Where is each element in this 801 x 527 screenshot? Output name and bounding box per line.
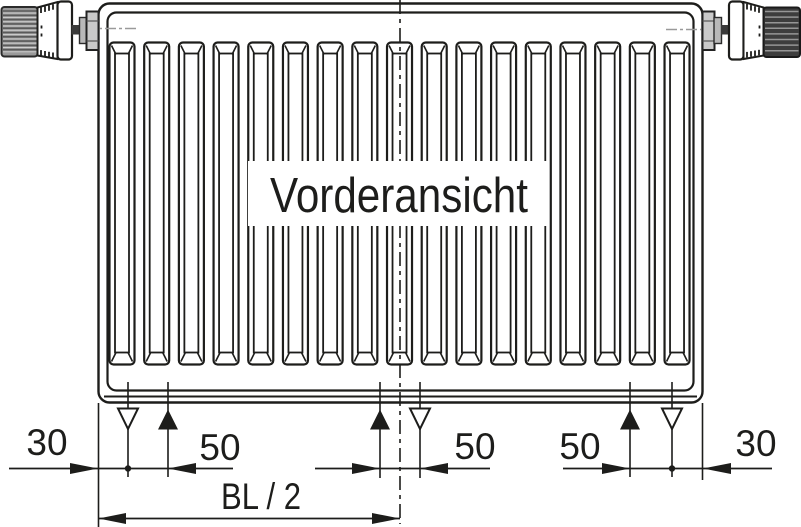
arrowhead-right-icon: [352, 463, 380, 474]
filled-triangle-up-icon: [158, 410, 178, 430]
dim-label-right-margin: 30: [735, 423, 776, 464]
arrowhead-left-icon: [420, 463, 448, 474]
lockshield-cap-right: [764, 8, 801, 58]
hollow-triangle-down-icon: [662, 409, 682, 430]
valve-cone-right: [744, 2, 764, 59]
dimension-point-dot: [669, 465, 675, 471]
union-nut-right: [703, 12, 715, 51]
arrowhead-left-icon: [99, 513, 127, 524]
dimension-point-dot: [125, 465, 131, 471]
rib-inner-face: [184, 54, 198, 353]
rib-inner-face: [219, 54, 233, 353]
radiator-front-view-drawing: Vorderansicht: [0, 0, 801, 527]
dim-label-left-spacing: 50: [199, 427, 240, 468]
front-view-title: Vorderansicht: [270, 169, 528, 223]
arrowhead-right-icon: [602, 463, 630, 474]
radiator-rib: [630, 43, 655, 365]
filled-triangle-up-icon: [370, 410, 390, 430]
rib-inner-face: [670, 54, 684, 353]
arrowhead-left-icon: [703, 463, 731, 474]
dimension-lines: [9, 469, 772, 519]
rib-inner-face: [115, 54, 129, 353]
rib-inner-face: [601, 54, 615, 353]
rib-inner-face: [635, 54, 649, 353]
front-view-label-box: Vorderansicht: [248, 161, 547, 226]
rib-inner-face: [150, 54, 164, 353]
radiator-rib: [214, 43, 239, 365]
dim-label-half-build-length: BL / 2: [221, 476, 301, 517]
valve-stem-left: [72, 25, 81, 35]
arrowhead-right-icon: [372, 513, 400, 524]
arrowhead-left-icon: [168, 463, 196, 474]
radiator-rib: [179, 43, 204, 365]
radiator-rib: [110, 43, 135, 365]
technical-drawing-canvas: Vorderansicht: [0, 0, 801, 527]
valve-body-left: [58, 2, 73, 60]
dim-label-right-spacing: 50: [559, 426, 600, 467]
union-nut-left: [87, 12, 99, 51]
hollow-triangle-down-icon: [410, 409, 430, 430]
radiator-rib: [595, 43, 620, 365]
dim-label-left-margin: 30: [26, 422, 67, 463]
dimension-labels: 30 50 50 50 30 BL / 2: [26, 422, 776, 517]
valve-body-right: [729, 2, 744, 60]
valve-spacer-right: [714, 18, 722, 44]
arrowhead-right-icon: [70, 463, 98, 474]
rib-inner-face: [566, 54, 580, 353]
radiator-rib: [144, 43, 169, 365]
radiator-rib: [560, 43, 585, 365]
radiator-rib: [665, 43, 690, 365]
filled-triangle-up-icon: [620, 410, 640, 430]
hollow-triangle-down-icon: [118, 409, 138, 430]
dim-label-center-spacing: 50: [454, 426, 495, 467]
